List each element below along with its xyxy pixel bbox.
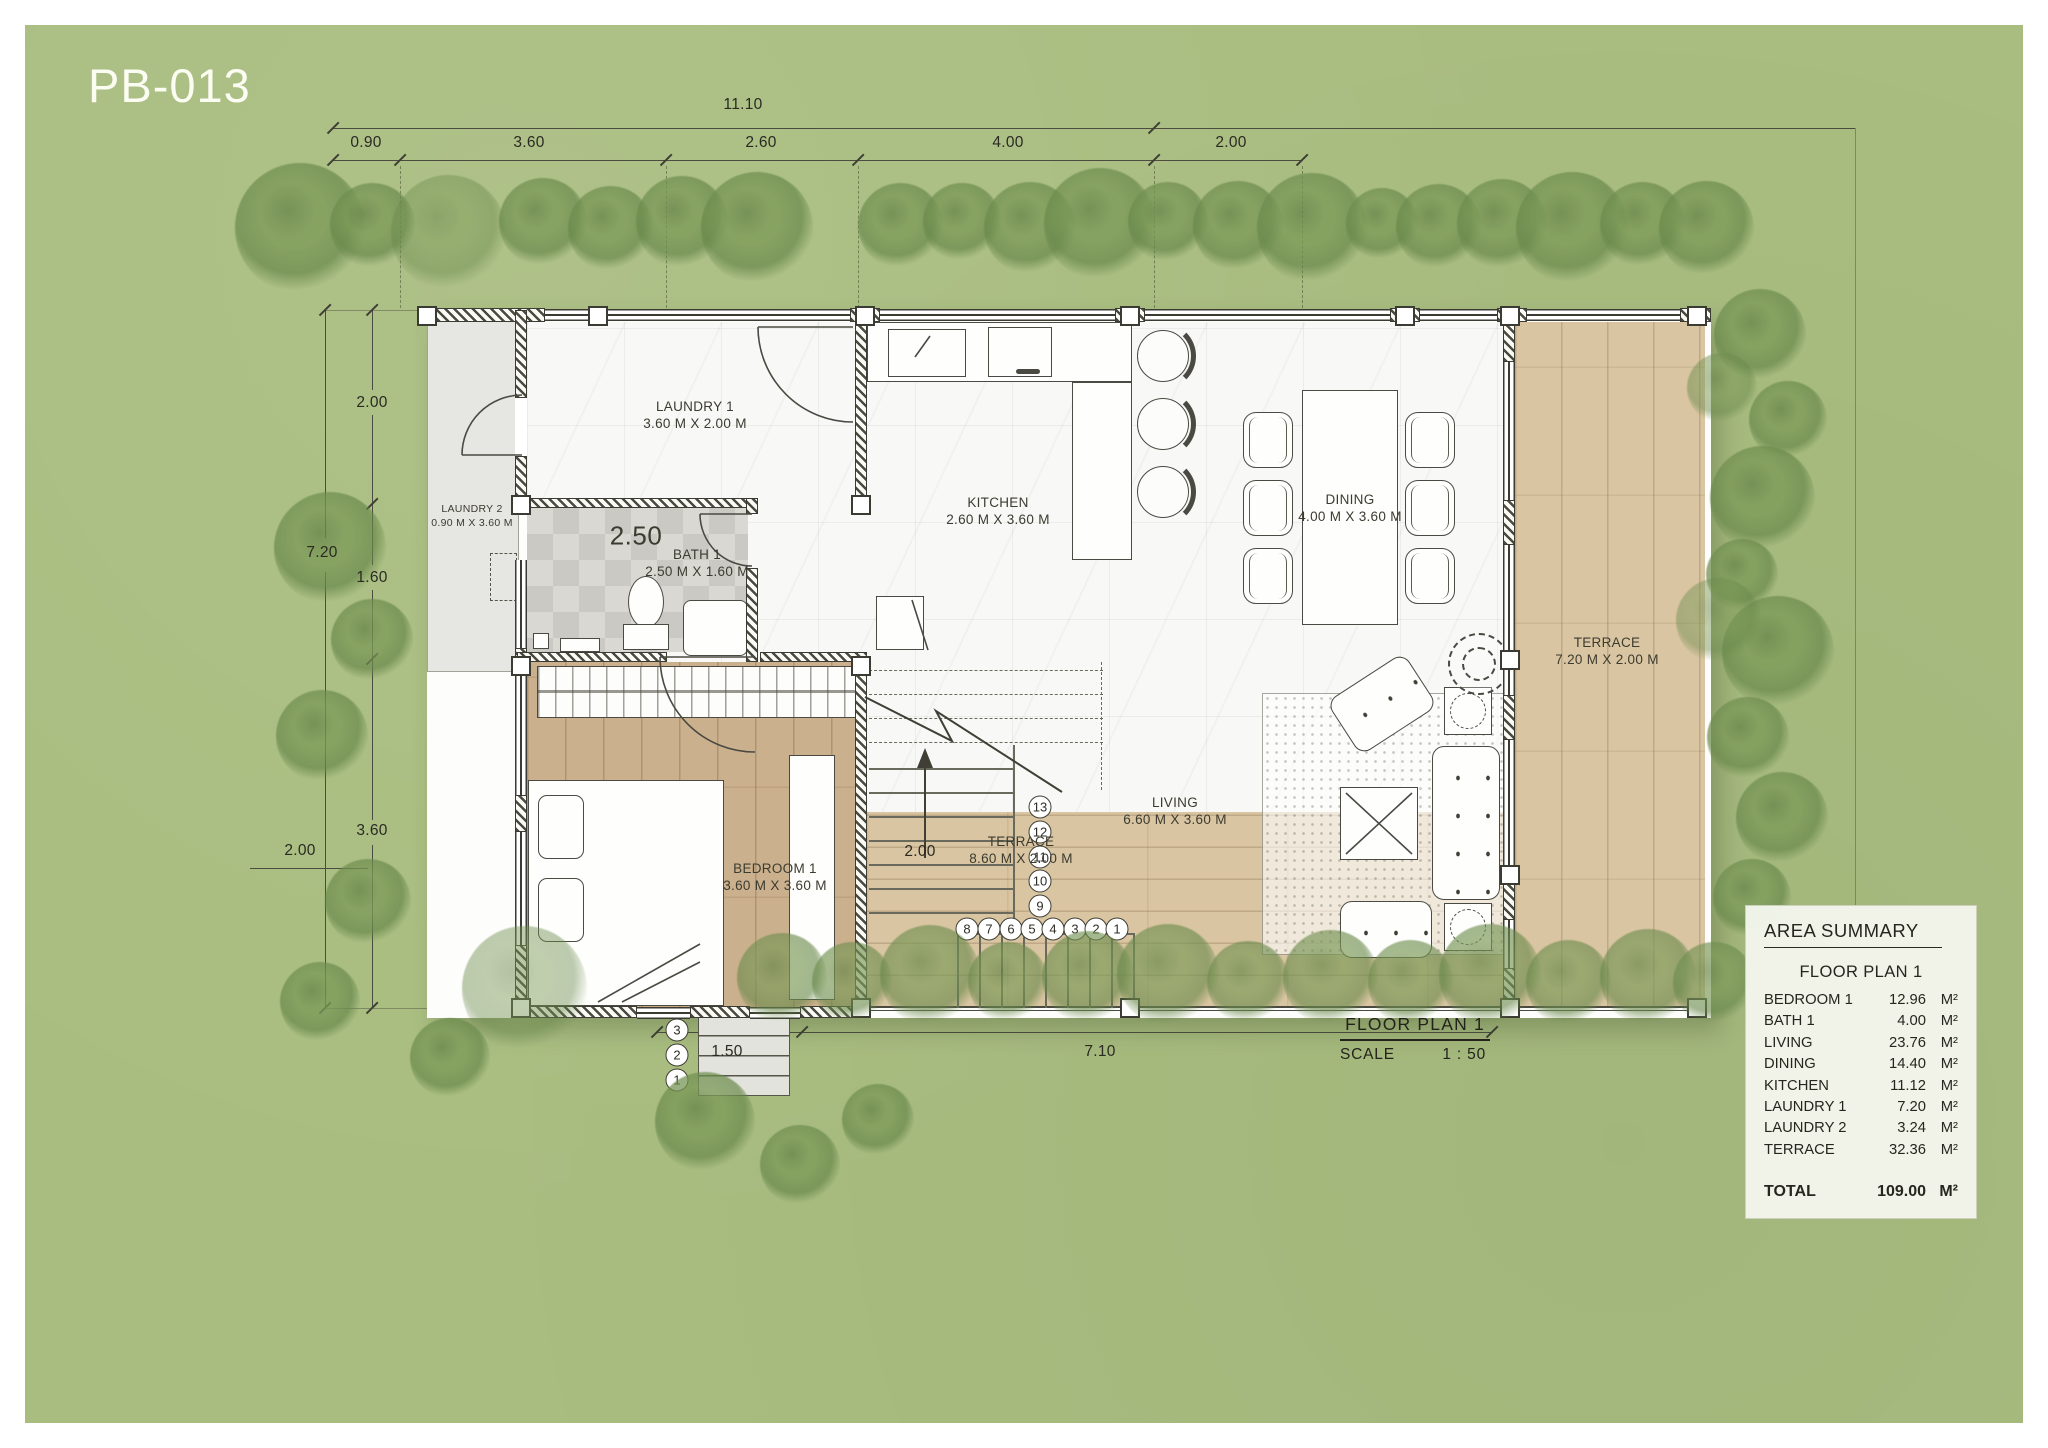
- wall-west: [515, 310, 527, 398]
- wall-stair: [855, 662, 867, 1008]
- wall-east: [1503, 322, 1515, 362]
- shower-tray: [683, 600, 748, 656]
- wall-east: [1503, 500, 1515, 545]
- dining-chair: [1405, 412, 1455, 468]
- floor-laundry2-strip: [427, 310, 519, 672]
- dim-guide: [1302, 166, 1303, 308]
- dim-line-left-inner-c: [372, 590, 373, 820]
- dining-chair: [1405, 480, 1455, 536]
- stair-tread: [869, 816, 1015, 818]
- stair-dashed-edge: [1101, 662, 1102, 790]
- stair-tread: [869, 888, 1015, 890]
- room-label-terrace-bottom: TERRACE 8.60 M X 2.00 M: [969, 833, 1073, 867]
- dim-garden-left: 2.00: [284, 842, 315, 860]
- wall-bath-right: [746, 498, 758, 514]
- armchair: [1340, 901, 1432, 958]
- pillow: [538, 795, 584, 859]
- dim-guide: [666, 166, 667, 308]
- dim-line-garden-left: [250, 868, 368, 869]
- dim-guide: [858, 166, 859, 308]
- terrace-edge-south: [867, 1006, 1705, 1011]
- dim-left-1: 1.60: [356, 569, 387, 587]
- dim-guide: [1154, 166, 1155, 308]
- room-label-laundry1: LAUNDRY 1 3.60 M X 2.00 M: [643, 398, 747, 432]
- bar-stool: [1137, 398, 1189, 450]
- floor-plan-sheet: PB-013 11.10 0.90 3.60 2.60 4.00 2.00 2.…: [0, 0, 2048, 1448]
- area-row: LAUNDRY 23.24M²: [1764, 1118, 1958, 1139]
- wall-kitchen-divider: [855, 322, 867, 500]
- area-row: DINING14.40M²: [1764, 1054, 1958, 1075]
- area-row: BEDROOM 112.96M²: [1764, 990, 1958, 1011]
- window-west: [515, 674, 527, 795]
- scale-row: SCALE 1 : 50: [1340, 1046, 1490, 1064]
- scale-value: 1 : 50: [1413, 1046, 1490, 1064]
- room-label-laundry2: LAUNDRY 2 0.90 M X 3.60 M: [431, 502, 513, 530]
- stair-step-5: 5: [1021, 918, 1044, 941]
- plan-name: FLOOR PLAN 1: [1340, 1014, 1490, 1041]
- stair-step-8: 8: [956, 918, 979, 941]
- entry-step-3: 3: [666, 1019, 689, 1042]
- column-post: [511, 998, 531, 1018]
- kitchen-desk: [876, 596, 924, 650]
- window-south: [750, 1007, 800, 1019]
- pillow: [538, 878, 584, 942]
- dim-line-left-outer-a: [325, 310, 326, 538]
- stair-step-13: 13: [1029, 796, 1052, 819]
- stair-tread: [869, 912, 1015, 914]
- room-label-terrace-side: TERRACE 7.20 M X 2.00 M: [1555, 634, 1659, 668]
- stair-tread: [957, 935, 959, 1008]
- column-post: [1500, 865, 1520, 885]
- area-row: BATH 14.00M²: [1764, 1011, 1958, 1032]
- dim-top-2: 2.60: [745, 134, 776, 152]
- kitchen-sink: [888, 329, 966, 377]
- room-label-bedroom1: BEDROOM 1 3.60 M X 3.60 M: [723, 860, 827, 894]
- stair-tread: [1067, 935, 1069, 1008]
- window-east: [1503, 362, 1515, 500]
- stair-tread: [979, 935, 981, 1008]
- stair-tread: [1089, 935, 1091, 1008]
- side-table-plant: [1444, 903, 1492, 951]
- window-top: [1420, 309, 1497, 321]
- column-post: [1395, 306, 1415, 326]
- column-post: [511, 656, 531, 676]
- dining-chair: [1243, 412, 1293, 468]
- bath-fixture: [533, 633, 549, 649]
- column-post: [855, 306, 875, 326]
- column-post: [1687, 306, 1707, 326]
- column-post: [851, 998, 871, 1018]
- dim-top-4: 2.00: [1215, 134, 1246, 152]
- column-post: [1687, 998, 1707, 1018]
- titleblock: FLOOR PLAN 1 SCALE 1 : 50: [1340, 1014, 1490, 1064]
- room-label-kitchen: KITCHEN 2.60 M X 3.60 M: [946, 494, 1050, 528]
- plot-boundary-right: [1855, 128, 1856, 908]
- dim-left-0: 2.00: [356, 394, 387, 412]
- stair-dashed-tread: [869, 694, 1103, 695]
- column-post: [1500, 306, 1520, 326]
- bar-stool: [1137, 330, 1189, 382]
- column-post: [511, 495, 531, 515]
- column-post: [417, 306, 437, 326]
- window-top: [1145, 309, 1390, 321]
- dim-top-0: 0.90: [350, 134, 381, 152]
- area-row: KITCHEN11.12M²: [1764, 1076, 1958, 1097]
- stair-step-1: 1: [1106, 918, 1129, 941]
- column-post: [1120, 998, 1140, 1018]
- stair-step-10: 10: [1029, 870, 1052, 893]
- stair-tread: [1001, 935, 1003, 1008]
- stair-tread: [869, 792, 1015, 794]
- stair-step-2: 2: [1085, 918, 1108, 941]
- dim-top-3: 4.00: [992, 134, 1023, 152]
- stair-step-6: 6: [1000, 918, 1023, 941]
- dim-line-left-inner-b: [372, 415, 373, 565]
- window-south: [637, 1007, 690, 1019]
- window-west: [515, 832, 527, 945]
- dim-top-1: 3.60: [513, 134, 544, 152]
- area-summary-title: AREA SUMMARY: [1764, 920, 1942, 948]
- area-summary-subtitle: FLOOR PLAN 1: [1764, 963, 1958, 982]
- dining-chair: [1405, 548, 1455, 604]
- column-post: [1120, 306, 1140, 326]
- window-top: [880, 309, 1115, 321]
- window-top: [1527, 309, 1680, 321]
- room-label-living: LIVING 6.60 M X 3.60 M: [1123, 794, 1227, 828]
- wall-south: [690, 1006, 750, 1018]
- area-summary-panel: AREA SUMMARY FLOOR PLAN 1 BEDROOM 112.96…: [1745, 905, 1977, 1219]
- dim-line-left-outer-b: [325, 572, 326, 1008]
- wall-west: [515, 795, 527, 832]
- area-row: TERRACE32.36M²: [1764, 1140, 1958, 1161]
- entry-step-2: 2: [666, 1044, 689, 1067]
- dim-line-top-total: [333, 128, 1855, 129]
- toilet-tank: [623, 624, 669, 650]
- stair-step-3: 3: [1064, 918, 1087, 941]
- window-east: [1503, 920, 1515, 968]
- wall-bedroom-top: [517, 652, 667, 662]
- washer-dashed: [490, 553, 517, 601]
- dim-bottom-1: 7.10: [1084, 1043, 1115, 1061]
- stair-step-7: 7: [978, 918, 1001, 941]
- stair-tread: [1045, 935, 1047, 1008]
- window-west: [515, 560, 527, 648]
- wall-bath-top: [527, 498, 748, 508]
- dim-extension: [325, 310, 427, 311]
- stair-tread: [1111, 935, 1113, 1008]
- room-label-bath1: BATH 1 2.50 M X 1.60 M: [645, 546, 749, 580]
- dim-guide: [400, 166, 401, 308]
- wardrobe: [537, 666, 857, 718]
- area-total-row: TOTAL109.00M²: [1764, 1181, 1958, 1203]
- area-row: LAUNDRY 17.20M²: [1764, 1097, 1958, 1118]
- column-post: [1500, 998, 1520, 1018]
- stair-tread: [869, 768, 1015, 770]
- dim-line-left-inner-d: [372, 845, 373, 1008]
- dim-left-total: 7.20: [306, 544, 337, 562]
- sofa: [1432, 746, 1500, 900]
- dim-left-2: 3.60: [356, 822, 387, 840]
- dim-line-top-segments: [333, 160, 1302, 161]
- wall-east: [1503, 695, 1515, 740]
- dining-chair: [1243, 548, 1293, 604]
- column-post: [1500, 650, 1520, 670]
- stove-handle: [1016, 369, 1040, 374]
- area-row: LIVING23.76M²: [1764, 1033, 1958, 1054]
- wall-top: [427, 308, 545, 322]
- entry-step-1: 1: [666, 1069, 689, 1092]
- bar-stool: [1137, 466, 1189, 518]
- stair-dashed-tread: [869, 742, 1103, 743]
- dim-terrace-width: 2.00: [904, 843, 935, 861]
- stair-step-9: 9: [1029, 895, 1052, 918]
- bath-fixture: [560, 638, 600, 652]
- dim-bottom-0: 1.50: [711, 1043, 742, 1061]
- stair-dashed-tread: [869, 670, 1103, 671]
- kitchen-peninsula: [1072, 382, 1132, 560]
- door-opening-west: [515, 398, 527, 456]
- column-post: [851, 656, 871, 676]
- dim-top-total: 11.10: [723, 96, 762, 114]
- coffee-table: [1340, 787, 1418, 860]
- stair-tread: [1023, 935, 1025, 1008]
- toilet-bowl: [628, 576, 664, 628]
- wall-south: [517, 1006, 637, 1018]
- stair-step-4: 4: [1042, 918, 1065, 941]
- stair-dashed-tread: [869, 718, 1103, 719]
- sheet-title: PB-013: [88, 58, 251, 113]
- scale-label: SCALE: [1340, 1046, 1413, 1064]
- window-east: [1503, 740, 1515, 875]
- dining-chair: [1243, 480, 1293, 536]
- column-post: [851, 495, 871, 515]
- room-label-dining: DINING 4.00 M X 3.60 M: [1298, 491, 1402, 525]
- window-east: [1503, 545, 1515, 695]
- wall-bath-right: [746, 568, 758, 662]
- column-post: [588, 306, 608, 326]
- dim-line-left-inner-a: [372, 310, 373, 390]
